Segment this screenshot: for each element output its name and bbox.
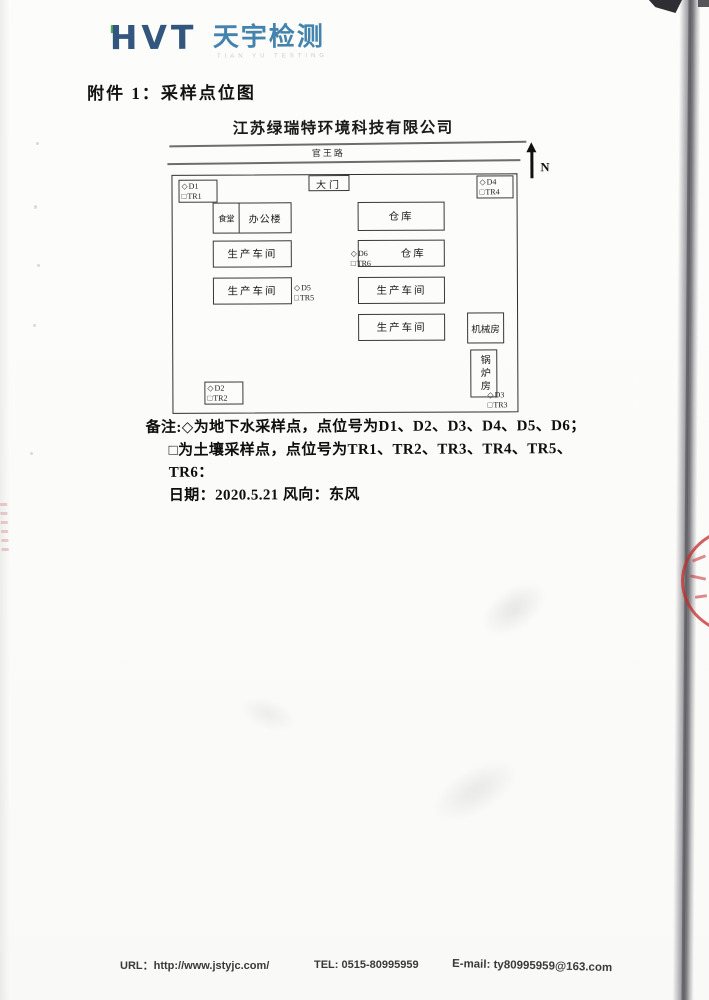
company-logo: HVT 天宇检测 TIAN YU TESTING — [0, 0, 708, 2]
north-arrow: N — [523, 142, 557, 182]
footer-url: URL：http://www.jstyjc.com/ — [120, 957, 269, 973]
groundwater-diamond-icon: ◇ — [294, 283, 300, 293]
soil-square-icon: □ — [182, 192, 187, 202]
workshop-building-right-2: 生产车间 — [358, 314, 445, 341]
soil-id-tr4: TR4 — [485, 187, 499, 197]
soil-square-icon: □ — [487, 400, 492, 410]
soil-square-icon: □ — [207, 394, 212, 404]
workshop-building-left-2: 生产车间 — [213, 277, 292, 304]
gate-box: 大门 — [308, 175, 349, 191]
scan-corner-mark-small — [698, 0, 709, 7]
canteen-office-building: 食堂 办公楼 — [213, 202, 292, 233]
north-arrow-shaft — [530, 150, 533, 178]
well-id-d3: D3 — [495, 390, 505, 400]
machinery-room-building: 机械房 — [467, 312, 504, 343]
sample-point-d6-tr6: ◇D6 □TR6 — [351, 249, 371, 269]
soil-id-tr1: TR1 — [187, 192, 201, 202]
note-line-groundwater: 备注:◇为地下水采样点，点位号为D1、D2、D3、D4、D5、D6； — [146, 415, 606, 440]
canteen-label: 食堂 — [214, 204, 240, 233]
well-id-d5: D5 — [301, 283, 311, 293]
soil-id-tr6: TR6 — [357, 259, 371, 269]
sample-point-d2-tr2: ◇D2 □TR2 — [204, 382, 243, 405]
soil-square-icon: □ — [480, 187, 485, 197]
office-building-label: 办公楼 — [240, 203, 291, 232]
workshop-right-2-label: 生产车间 — [377, 320, 427, 335]
workshop-left-2-label: 生产车间 — [227, 283, 277, 298]
diagram-company-name: 江苏绿瑞特环境科技有限公司 — [171, 115, 515, 139]
page-content: HVT 天宇检测 TIAN YU TESTING 附件 1：采样点位图 江苏绿瑞… — [0, 0, 709, 1000]
sample-point-d1-tr1: ◇D1 □TR1 — [178, 180, 217, 203]
well-id-d6: D6 — [358, 249, 368, 259]
scan-speck — [36, 142, 39, 145]
soil-square-icon: □ — [351, 259, 356, 269]
groundwater-diamond-icon: ◇ — [181, 182, 187, 192]
scanned-page: HVT 天宇检测 TIAN YU TESTING 附件 1：采样点位图 江苏绿瑞… — [0, 0, 709, 1000]
sample-point-d3-tr3: ◇D3 □TR3 — [487, 390, 507, 410]
north-label: N — [540, 160, 549, 175]
scan-speck — [33, 324, 36, 327]
warehouse-1-label: 仓库 — [389, 209, 414, 224]
note-line-soil: □为土壤采样点，点位号为TR1、TR2、TR3、TR4、TR5、TR6： — [169, 437, 606, 484]
groundwater-diamond-icon: ◇ — [479, 177, 485, 187]
logo-monogram: HVT — [110, 21, 198, 54]
soil-square-icon: □ — [294, 293, 299, 303]
soil-id-tr3: TR3 — [493, 400, 507, 410]
well-id-d2: D2 — [215, 384, 225, 394]
sample-point-d4-tr4: ◇D4 □TR4 — [476, 175, 513, 198]
legend-notes: 备注:◇为地下水采样点，点位号为D1、D2、D3、D4、D5、D6； □为土壤采… — [146, 415, 606, 507]
well-id-d4: D4 — [487, 177, 497, 187]
site-diagram: 江苏绿瑞特环境科技有限公司 官王路 N 大门 食堂 办公楼 仓库 生产车间 — [0, 0, 708, 2]
scan-speck — [34, 205, 37, 209]
workshop-building-left-1: 生产车间 — [213, 240, 292, 267]
workshop-right-1-label: 生产车间 — [376, 283, 426, 298]
attachment-title: 附件 1：采样点位图 — [87, 78, 256, 104]
workshop-building-right-1: 生产车间 — [358, 277, 445, 304]
soil-id-tr2: TR2 — [213, 394, 227, 404]
groundwater-diamond-icon: ◇ — [351, 249, 357, 259]
logo-subtext: TIAN YU TESTING — [217, 53, 328, 59]
road-name-label: 官王路 — [299, 146, 357, 159]
road-lower-line — [167, 159, 520, 165]
warehouse-building-1: 仓库 — [358, 202, 445, 231]
workshop-left-1-label: 生产车间 — [227, 246, 277, 261]
soil-id-tr5: TR5 — [300, 293, 314, 303]
note-line-date-wind: 日期：2020.5.21 风向：东风 — [169, 482, 606, 506]
groundwater-diamond-icon: ◇ — [207, 384, 213, 394]
warehouse-2-label: 仓库 — [377, 246, 426, 261]
well-id-d1: D1 — [189, 182, 199, 192]
scan-speck — [30, 452, 33, 455]
groundwater-diamond-icon: ◇ — [487, 390, 493, 400]
sample-point-d5-tr5: ◇D5 □TR5 — [294, 283, 314, 303]
footer-tel: TEL: 0515-80995959 — [314, 959, 419, 971]
scan-speck — [37, 264, 40, 267]
logo-brand-name: 天宇检测 — [213, 24, 325, 50]
